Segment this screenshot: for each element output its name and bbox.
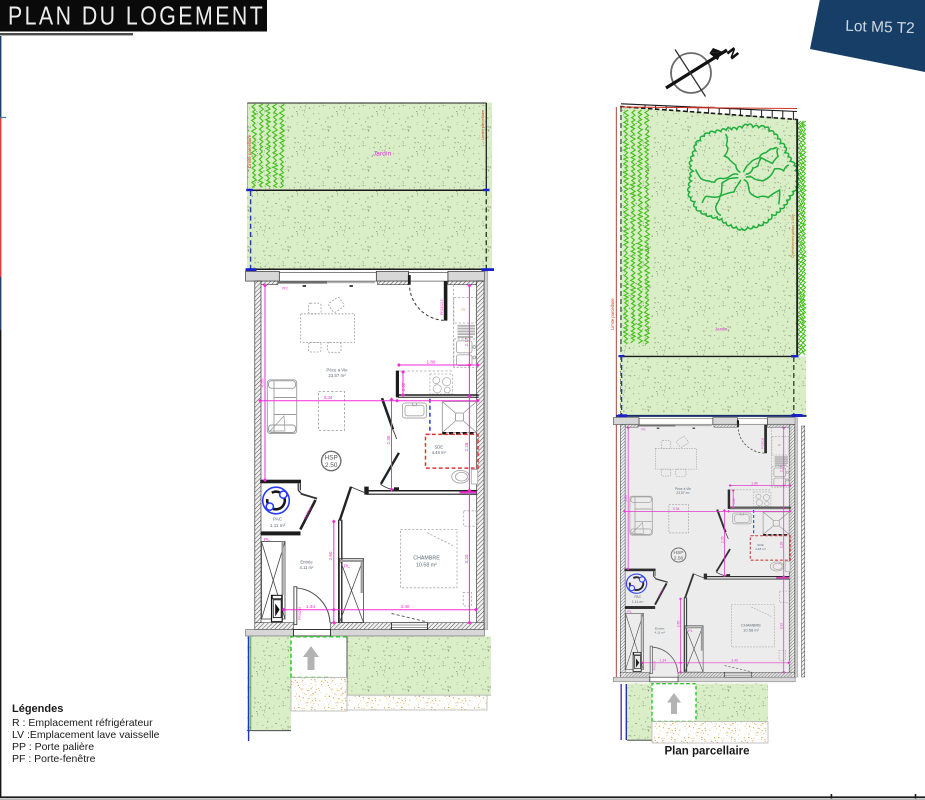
svg-text:LV :Emplacement lave vaisselle: LV :Emplacement lave vaisselle: [12, 729, 160, 741]
svg-text:PF : Porte-fenêtre: PF : Porte-fenêtre: [12, 753, 96, 765]
svg-text:Jardin: Jardin: [715, 327, 728, 332]
svg-text:Limite parcellaire: Limite parcellaire: [247, 134, 252, 168]
svg-text:Plan parcellaire: Plan parcellaire: [664, 746, 749, 758]
svg-text:Jardin: Jardin: [373, 151, 392, 158]
svg-text:R : Emplacement réfrigérateur: R : Emplacement réfrigérateur: [12, 717, 153, 729]
svg-text:PP : Porte palière: PP : Porte palière: [12, 741, 94, 753]
svg-text:Limite parcellaire: Limite parcellaire: [480, 109, 485, 140]
svg-text:Lot M5 T2: Lot M5 T2: [845, 18, 915, 37]
svg-text:Cheminement piéton 1.40m: Cheminement piéton 1.40m: [791, 214, 795, 258]
svg-text:Limite parcellaire: Limite parcellaire: [688, 106, 715, 110]
svg-text:Légendes: Légendes: [12, 703, 63, 715]
svg-text:Limite parcellaire: Limite parcellaire: [610, 298, 615, 330]
svg-text:PLAN DU LOGEMENT: PLAN DU LOGEMENT: [8, 2, 265, 32]
